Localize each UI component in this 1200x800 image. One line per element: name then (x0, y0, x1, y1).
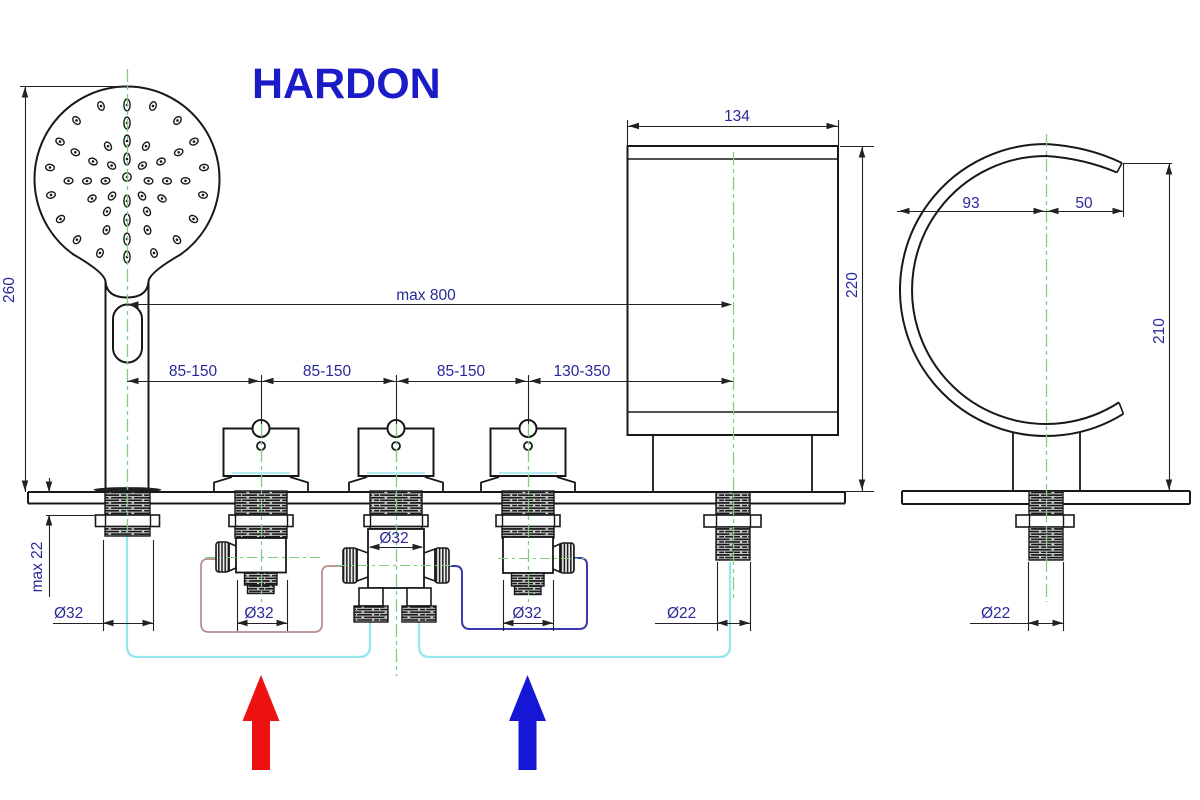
svg-text:260: 260 (1, 277, 18, 303)
svg-text:220: 220 (844, 272, 861, 298)
svg-text:Ø22: Ø22 (981, 605, 1010, 622)
svg-text:max 800: max 800 (396, 287, 456, 304)
svg-text:93: 93 (962, 195, 979, 212)
svg-text:HARDON: HARDON (252, 60, 441, 108)
svg-text:130-350: 130-350 (554, 363, 611, 380)
svg-text:Ø22: Ø22 (667, 605, 696, 622)
svg-text:max 22: max 22 (29, 542, 46, 593)
svg-text:Ø32: Ø32 (244, 605, 273, 622)
svg-text:85-150: 85-150 (437, 363, 486, 380)
svg-text:85-150: 85-150 (303, 363, 352, 380)
svg-text:Ø32: Ø32 (512, 605, 541, 622)
svg-text:Ø32: Ø32 (379, 530, 408, 547)
svg-text:134: 134 (724, 108, 750, 125)
svg-text:Ø32: Ø32 (54, 605, 83, 622)
svg-text:50: 50 (1075, 195, 1093, 212)
svg-text:210: 210 (1151, 318, 1168, 344)
svg-text:85-150: 85-150 (169, 363, 218, 380)
